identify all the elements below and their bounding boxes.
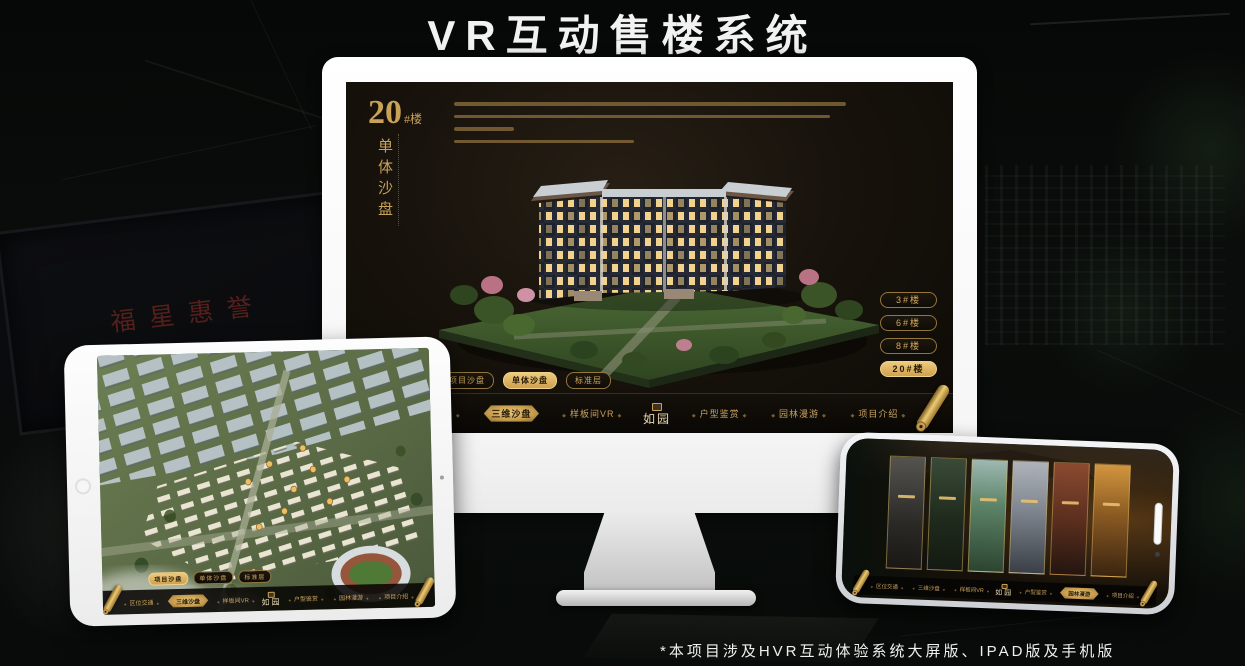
tablet-screen: 项目沙盘 单体沙盘 标准层 区位交通 三维沙盘 样板间VR 如园 户型鉴赏 园林… [97,348,435,615]
divider-line [398,134,399,226]
scroll-menu-icon[interactable] [915,382,952,431]
nav-project-intro[interactable]: 项目介绍 [376,591,417,601]
mode-tabs: 项目沙盘 单体沙盘 标准层 [440,372,611,389]
building-number: 20#楼 [368,96,422,130]
tab-single-sandtable[interactable]: 单体沙盘 [193,571,233,585]
bg-map-line [145,60,345,127]
floor-selector: 3#楼 6#楼 8#楼 20#楼 [880,292,937,377]
seal-icon [268,591,275,597]
nav-showroom-vr[interactable]: 样板间VR [214,595,258,605]
gallery-panel-1[interactable] [885,455,925,569]
brand-logo-text: 如园 [995,590,1013,598]
seal-icon [652,403,662,411]
floor-button-8[interactable]: 8#楼 [880,338,937,354]
building-number-value: 20 [368,94,402,131]
plaque-text: 福星惠誉 [94,285,267,340]
bg-map-line [63,125,318,180]
gallery-panel-3[interactable] [967,459,1007,573]
nav-location-traffic[interactable]: 区位交通 [121,597,162,607]
nav-3d-sandtable[interactable]: 三维沙盘 [481,405,541,422]
camera-icon [440,475,444,479]
tab-project-sandtable[interactable]: 项目沙盘 [148,572,188,586]
nav-garden-roam[interactable]: 园林漫游 [768,407,830,420]
floor-button-6[interactable]: 6#楼 [880,315,937,331]
nav-garden-roam[interactable]: 园林漫游 [330,592,371,602]
brand-logo-text: 如园 [261,598,281,606]
page-title: VR互动售楼系统 [0,2,1245,63]
tab-standard-floor[interactable]: 标准层 [238,570,271,584]
footnote: *本项目涉及HVR互动体验系统大屏版、IPAD版及手机版 [660,640,1115,661]
brand-logo-text: 如园 [643,413,671,425]
nav-3d-sandtable[interactable]: 三维沙盘 [166,594,210,608]
floor-button-3[interactable]: 3#楼 [880,292,937,308]
home-button[interactable] [75,478,91,494]
gallery-panel-4[interactable] [1008,460,1048,574]
brand-logo: 如园 [995,584,1013,598]
bg-buildings [985,165,1225,345]
nav-project-intro[interactable]: 项目介绍 [1103,590,1142,599]
nav-unit-plans[interactable]: 户型鉴赏 [1016,587,1055,596]
nav-unit-plans[interactable]: 户型鉴赏 [285,593,326,603]
nav-location-traffic[interactable]: 区位交通 [868,581,907,590]
nav-showroom-vr[interactable]: 样板间VR [951,584,992,594]
phone-screen: 区位交通 三维沙盘 样板间VR 如园 户型鉴赏 园林漫游 项目介绍 [841,438,1174,609]
camera-icon [1155,551,1160,556]
phone-device: 区位交通 三维沙盘 样板间VR 如园 户型鉴赏 园林漫游 项目介绍 [835,432,1180,616]
building-render[interactable] [434,144,889,396]
nav-unit-plans[interactable]: 户型鉴赏 [689,407,751,420]
brand-logo: 如园 [261,591,281,606]
building-number-suffix: #楼 [404,112,422,126]
gallery-panels [885,455,1130,577]
monitor-stand [584,511,715,593]
building-title: 20#楼 单体沙盘 [368,96,422,238]
gallery-panel-6[interactable] [1090,463,1130,577]
gallery-panel-5[interactable] [1049,462,1089,576]
nav-showroom-vr[interactable]: 样板间VR [559,407,625,420]
nav-project-intro[interactable]: 项目介绍 [848,407,910,420]
tablet-device: 项目沙盘 单体沙盘 标准层 区位交通 三维沙盘 样板间VR 如园 户型鉴赏 园林… [64,336,457,626]
tab-single-sandtable[interactable]: 单体沙盘 [503,372,557,389]
tab-standard-floor[interactable]: 标准层 [566,372,611,389]
brand-logo: 如园 [643,403,671,425]
poster: 福星惠誉 VR互动售楼系统 20#楼 单体沙盘 [0,0,1245,666]
nav-3d-sandtable[interactable]: 三维沙盘 [909,583,948,592]
building-subtitle-vertical: 单体沙盘 [374,138,395,238]
nav-garden-roam[interactable]: 园林漫游 [1058,587,1100,601]
floor-button-20[interactable]: 20#楼 [880,361,937,377]
gallery-panel-2[interactable] [926,457,966,571]
monitor-base [556,590,756,606]
